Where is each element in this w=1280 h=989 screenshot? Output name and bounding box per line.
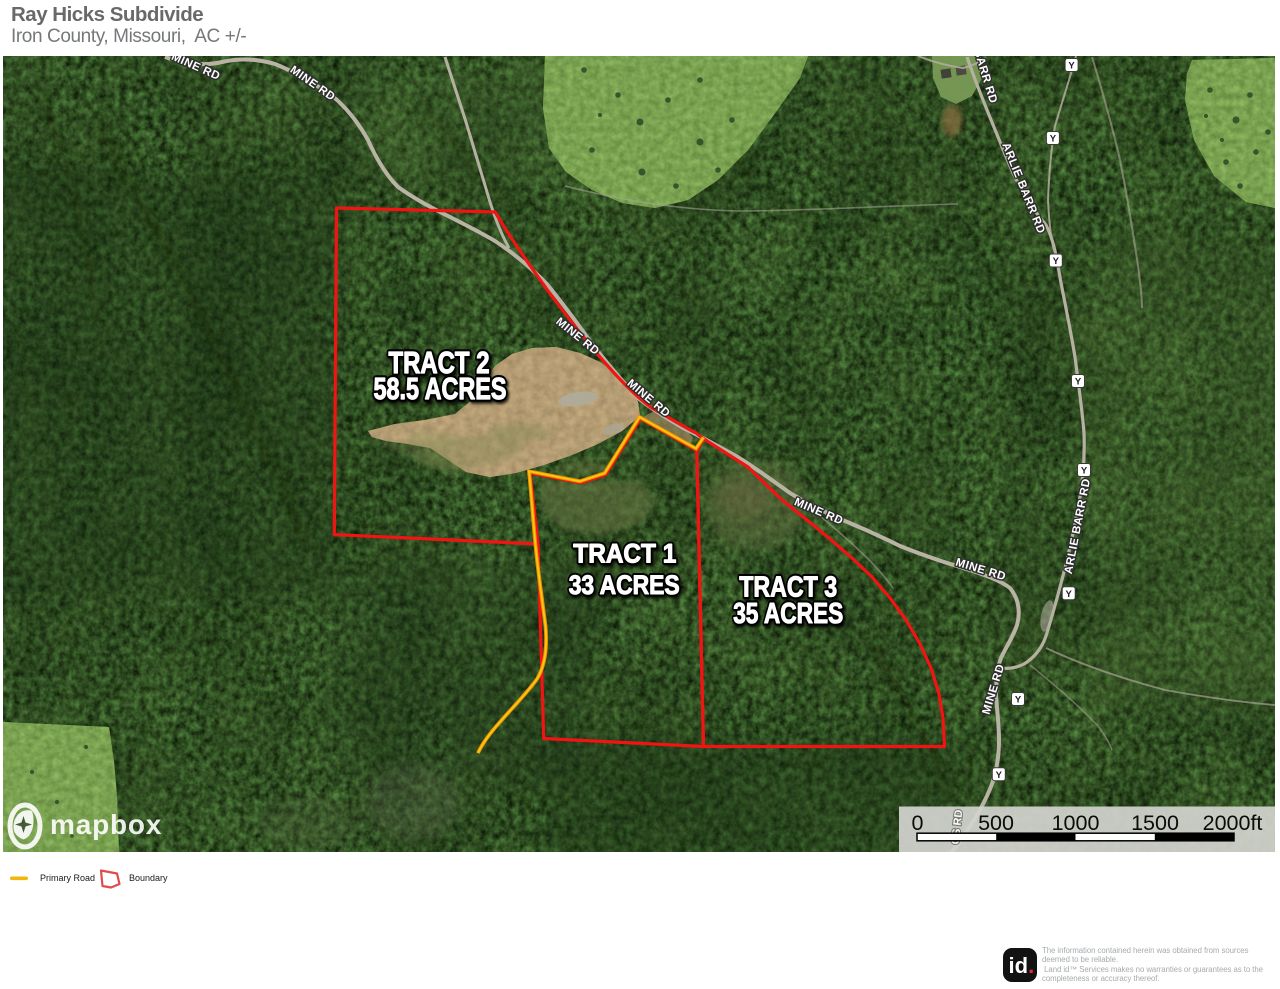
svg-text:TRACT 1: TRACT 1 <box>573 539 676 569</box>
svg-text:Y: Y <box>1081 466 1088 477</box>
svg-text:Y: Y <box>1066 589 1073 600</box>
svg-text:Y: Y <box>1075 377 1082 388</box>
svg-text:1500: 1500 <box>1131 811 1179 835</box>
svg-text:35 ACRES: 35 ACRES <box>733 598 843 630</box>
svg-text:2000ft: 2000ft <box>1203 811 1263 835</box>
svg-text:58.5 ACRES: 58.5 ACRES <box>374 371 507 406</box>
svg-text:Boundary: Boundary <box>129 873 168 883</box>
svg-text:Y: Y <box>1068 61 1075 72</box>
svg-text:500: 500 <box>978 811 1014 835</box>
svg-text:Y: Y <box>1050 134 1057 145</box>
svg-text:Primary Road: Primary Road <box>40 873 95 883</box>
svg-text:0: 0 <box>912 811 924 835</box>
svg-text:Y: Y <box>1015 695 1022 706</box>
svg-text:1000: 1000 <box>1052 811 1100 835</box>
svg-text:mapbox: mapbox <box>50 809 162 840</box>
svg-text:Y: Y <box>996 770 1003 781</box>
svg-text:33 ACRES: 33 ACRES <box>569 570 680 600</box>
svg-text:Y: Y <box>1053 256 1060 267</box>
